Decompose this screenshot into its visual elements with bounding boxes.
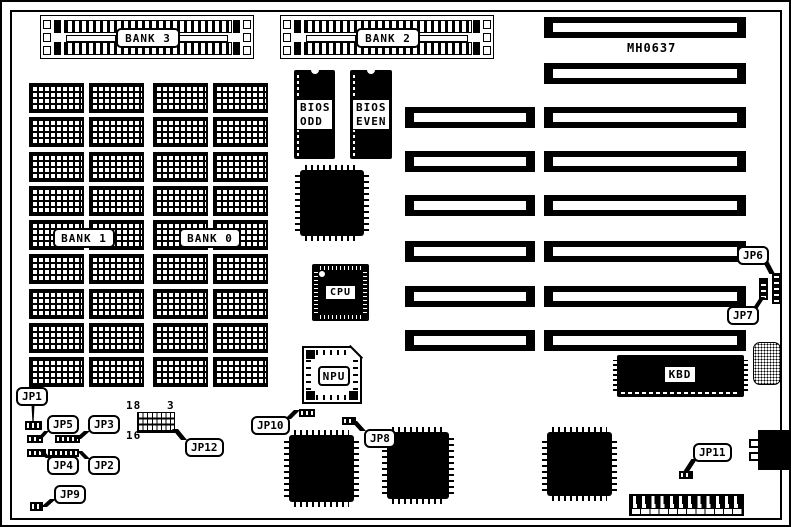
power-connector-clip [749,452,760,461]
jumper-jp9 [30,502,43,511]
jumper-jp10 [299,409,315,417]
callout-jp9: JP9 [54,485,86,504]
isa-slot-16bit-1-main [544,107,746,128]
keyboard-din-connector [753,342,781,385]
isa-slot-16bit-5-main [544,286,746,307]
isa-slot-16bit-3-main [544,195,746,216]
kbd-label: KBD [664,366,696,383]
isa-slot-16bit-1-ext [405,107,535,128]
jumper-jp6 [772,273,781,304]
isa-slot-16bit-3-ext [405,195,535,216]
callout-jp10: JP10 [251,416,290,435]
bank3-label: BANK 3 [116,28,180,48]
callout-jp6: JP6 [737,246,769,265]
power-connector [758,430,791,470]
callout-jp8: JP8 [364,429,396,448]
header-pins-top [631,496,742,504]
cpu-label: CPU [325,285,356,300]
jp12-pin16-label: 16 [126,429,141,442]
jumper-jp3 [55,435,80,443]
header-pins-bottom [631,508,742,514]
isa-slot-16bit-6-main [544,330,746,351]
isa-slot-8bit-1 [544,17,746,38]
callout-jp7: JP7 [727,306,759,325]
kbd-chip: KBD [617,355,744,397]
callout-jp3: JP3 [88,415,120,434]
power-led-header [629,494,744,516]
bank1-label: BANK 1 [53,228,115,248]
jumper-jp1 [25,421,42,430]
expansion-slot-area [2,2,789,525]
isa-slot-16bit-6-ext [405,330,535,351]
power-connector-clip [749,439,760,448]
motherboard-layout-figure: BANK 3 BANK 2 BANK 1 BANK 0 BIOS ODD [0,0,791,527]
jumper-jp11 [679,471,693,479]
callout-jp12: JP12 [185,438,224,457]
isa-slot-16bit-4-ext [405,241,535,262]
callout-jp5: JP5 [47,415,79,434]
isa-slot-16bit-2-main [544,151,746,172]
jumper-jp7 [759,278,768,300]
isa-slot-8bit-2 [544,63,746,84]
callout-jp2: JP2 [88,456,120,475]
chip-edge-dots [621,392,740,394]
bank0-label: BANK 0 [179,228,241,248]
callout-jp4: JP4 [47,456,79,475]
callout-jp11: JP11 [693,443,732,462]
callout-jp1: JP1 [16,387,48,406]
jp12-header [137,412,175,433]
kbd-pins-right [744,360,748,391]
isa-slot-16bit-4-main [544,241,746,262]
kbd-pins-left [613,360,617,391]
isa-slot-16bit-2-ext [405,151,535,172]
jp12-pin18-label: 18 [126,399,141,412]
part-number: MH0637 [627,41,676,55]
jp12-pin3-label: 3 [167,399,175,412]
bank2-label: BANK 2 [356,28,420,48]
isa-slot-16bit-5-ext [405,286,535,307]
